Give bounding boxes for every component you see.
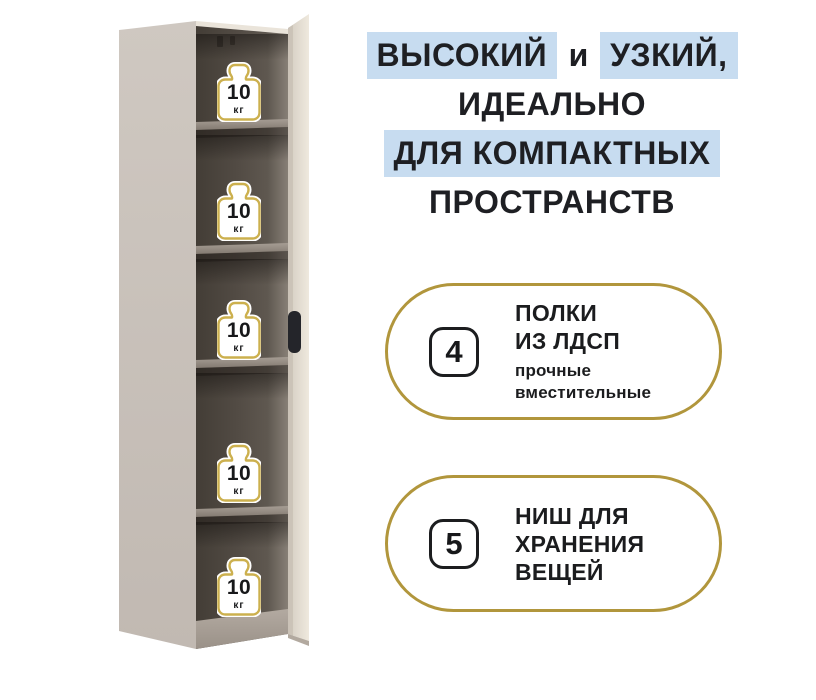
feature-count-box: 4 bbox=[429, 327, 479, 377]
weight-unit: кг bbox=[217, 600, 261, 611]
feature-title-line: ВЕЩЕЙ bbox=[515, 558, 644, 586]
weight-capacity-icon: 10 кг bbox=[217, 443, 261, 503]
feature-text: НИШ ДЛЯ ХРАНЕНИЯ ВЕЩЕЙ bbox=[515, 502, 644, 586]
weight-capacity-icon: 10 кг bbox=[217, 300, 261, 360]
niche-shadow bbox=[196, 259, 288, 285]
feature-text: ПОЛКИ ИЗ ЛДСП прочные вместительные bbox=[515, 299, 651, 404]
headline-line-1: ВЫСОКИЙ и УЗКИЙ, bbox=[340, 31, 764, 80]
feature-title: НИШ ДЛЯ ХРАНЕНИЯ ВЕЩЕЙ bbox=[515, 502, 644, 586]
headline-highlight: ВЫСОКИЙ bbox=[367, 32, 558, 79]
headline-highlight: ДЛЯ КОМПАКТНЫХ bbox=[384, 130, 721, 177]
niche-shadow bbox=[196, 373, 288, 399]
feature-subtitle: прочные вместительные bbox=[515, 360, 651, 404]
feature-title-line: НИШ ДЛЯ bbox=[515, 502, 644, 530]
headline-text: ИДЕАЛЬНО bbox=[456, 81, 648, 128]
weight-value: 10 bbox=[217, 462, 261, 486]
feature-subtitle-line: вместительные bbox=[515, 382, 651, 404]
headline-highlight: УЗКИЙ, bbox=[600, 32, 737, 79]
feature-badge-niches: 5 НИШ ДЛЯ ХРАНЕНИЯ ВЕЩЕЙ bbox=[385, 475, 722, 612]
feature-title-line: ИЗ ЛДСП bbox=[515, 327, 651, 355]
feature-count: 5 bbox=[445, 526, 462, 562]
weight-capacity-icon: 10 кг bbox=[217, 557, 261, 617]
weight-unit: кг bbox=[217, 343, 261, 354]
headline-text: и bbox=[567, 32, 591, 79]
weight-value: 10 bbox=[217, 200, 261, 224]
door-handle bbox=[288, 311, 301, 353]
headline-text: ПРОСТРАНСТВ bbox=[427, 179, 677, 226]
weight-unit: кг bbox=[217, 486, 261, 497]
weight-unit: кг bbox=[217, 224, 261, 235]
niche-shadow bbox=[196, 522, 288, 548]
weight-unit: кг bbox=[217, 105, 261, 116]
cabinet-side-panel bbox=[119, 21, 196, 649]
feature-count-box: 5 bbox=[429, 519, 479, 569]
weight-capacity-icon: 10 кг bbox=[217, 62, 261, 122]
headline-line-3: ДЛЯ КОМПАКТНЫХ bbox=[340, 129, 764, 178]
feature-subtitle-line: прочные bbox=[515, 360, 651, 382]
weight-value: 10 bbox=[217, 576, 261, 600]
feature-title-line: ПОЛКИ bbox=[515, 299, 651, 327]
headline-line-2: ИДЕАЛЬНО bbox=[340, 80, 764, 129]
weight-value: 10 bbox=[217, 81, 261, 105]
promo-infographic: 10 кг 10 кг 10 кг 10 кг 10 кг bbox=[0, 0, 816, 700]
feature-badge-shelves: 4 ПОЛКИ ИЗ ЛДСП прочные вместительные bbox=[385, 283, 722, 420]
feature-count: 4 bbox=[445, 334, 462, 370]
headline-line-4: ПРОСТРАНСТВ bbox=[340, 178, 764, 227]
niche-shadow bbox=[196, 34, 288, 60]
weight-capacity-icon: 10 кг bbox=[217, 181, 261, 241]
feature-title: ПОЛКИ ИЗ ЛДСП bbox=[515, 299, 651, 355]
weight-value: 10 bbox=[217, 319, 261, 343]
feature-title-line: ХРАНЕНИЯ bbox=[515, 530, 644, 558]
niche-shadow bbox=[196, 135, 288, 161]
headline: ВЫСОКИЙ и УЗКИЙ, ИДЕАЛЬНО ДЛЯ КОМПАКТНЫХ… bbox=[340, 31, 764, 227]
